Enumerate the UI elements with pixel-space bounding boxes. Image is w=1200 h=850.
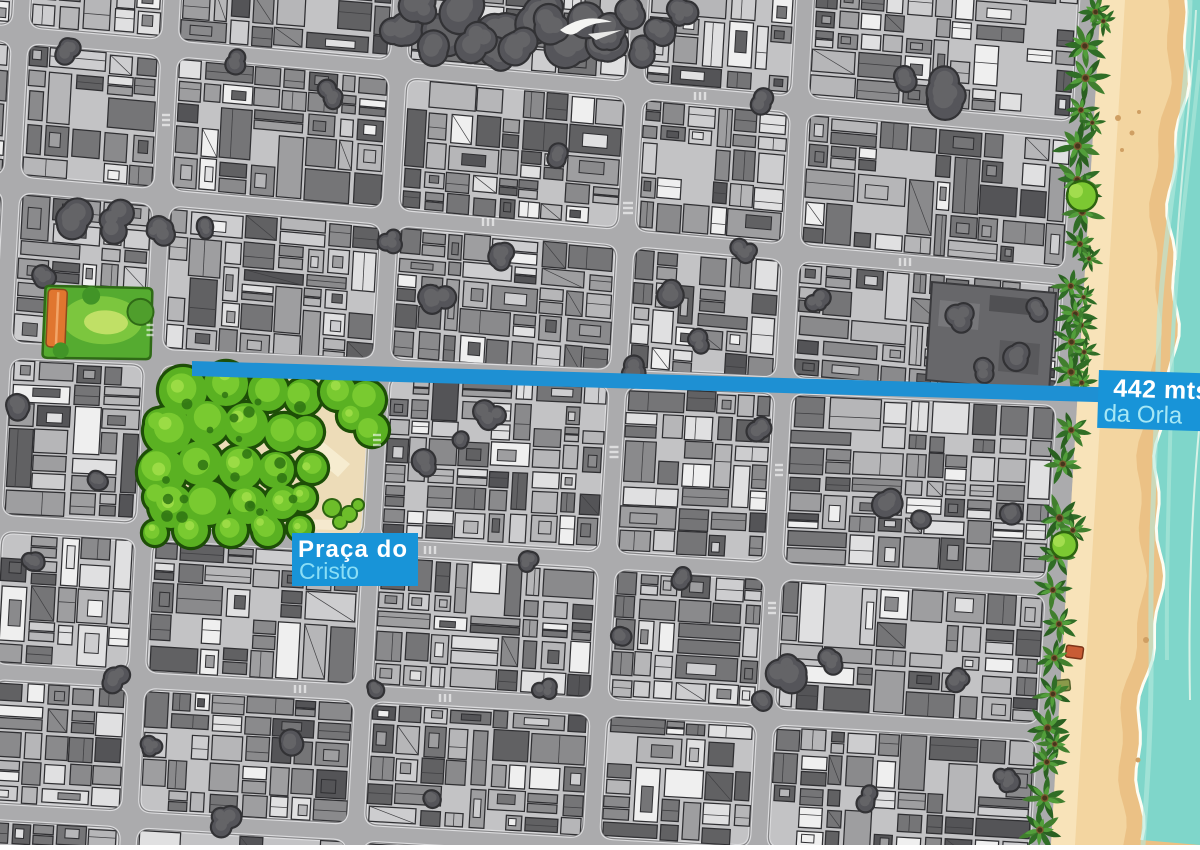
svg-text:da Orla: da Orla [1103, 400, 1183, 429]
svg-text:Cristo: Cristo [299, 558, 359, 584]
